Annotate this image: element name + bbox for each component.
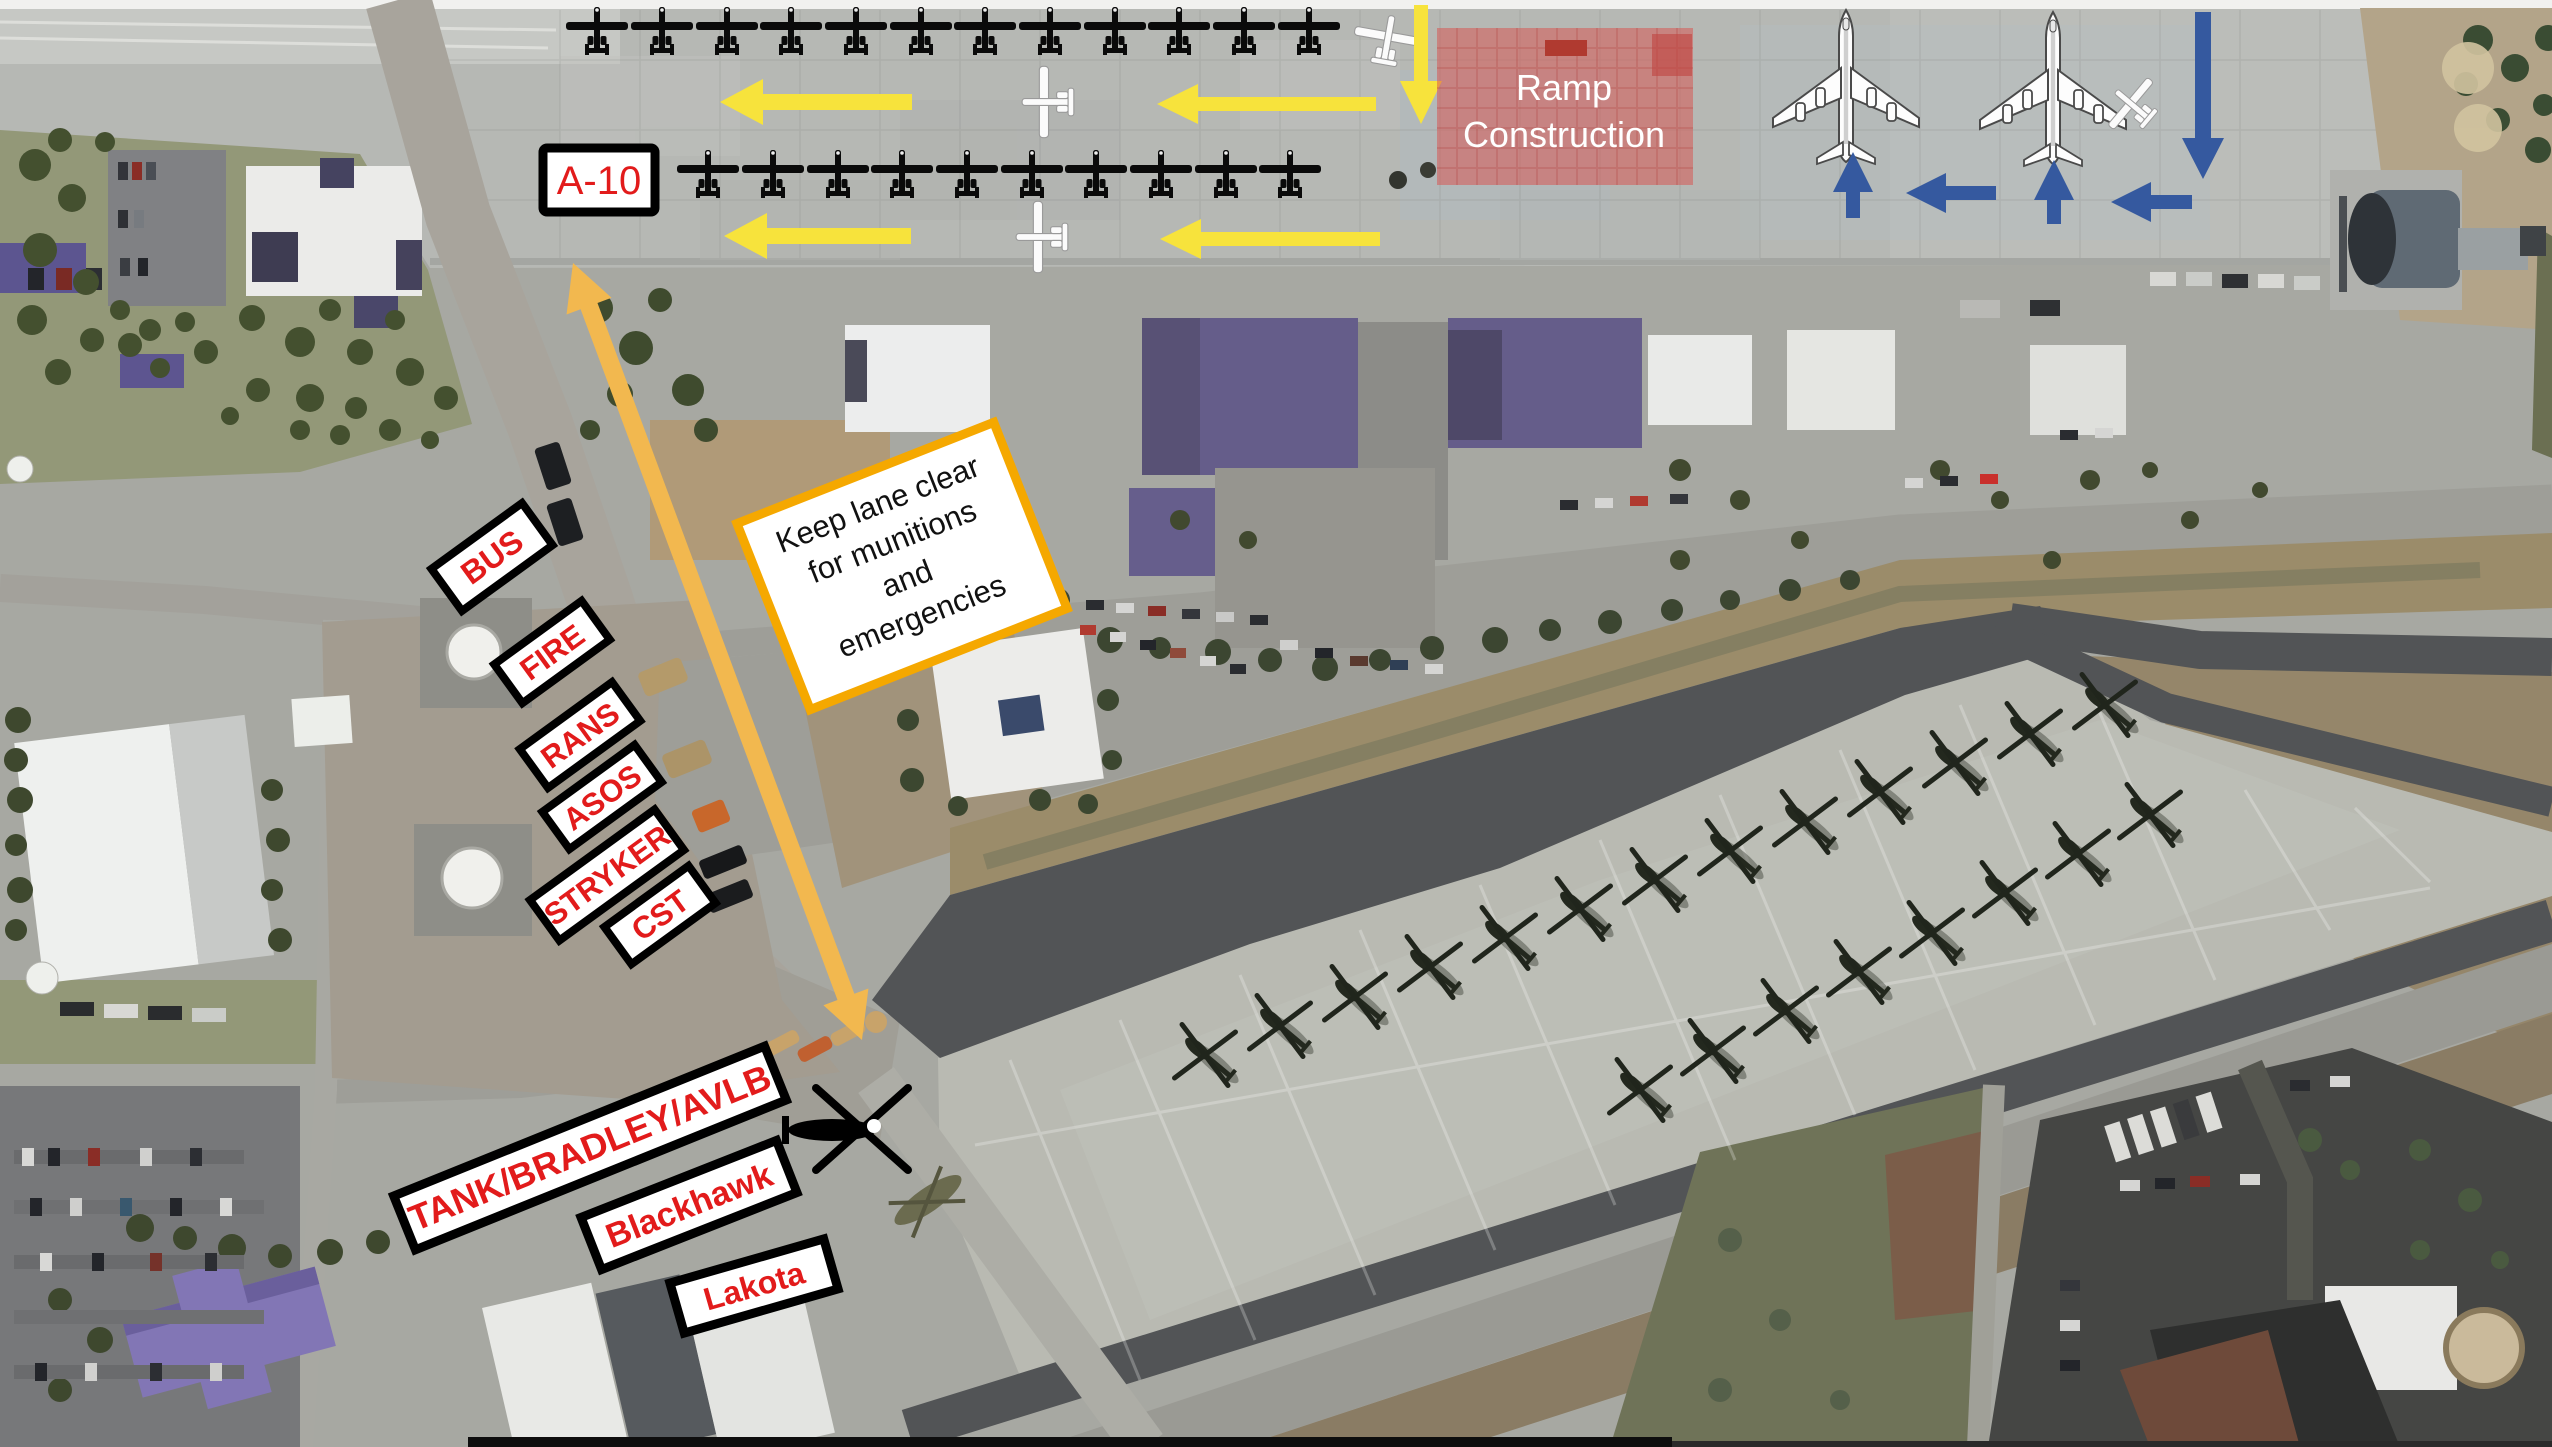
svg-text:A-10: A-10: [557, 159, 642, 203]
svg-text:Ramp: Ramp: [1516, 67, 1612, 108]
svg-text:Construction: Construction: [1463, 114, 1665, 155]
